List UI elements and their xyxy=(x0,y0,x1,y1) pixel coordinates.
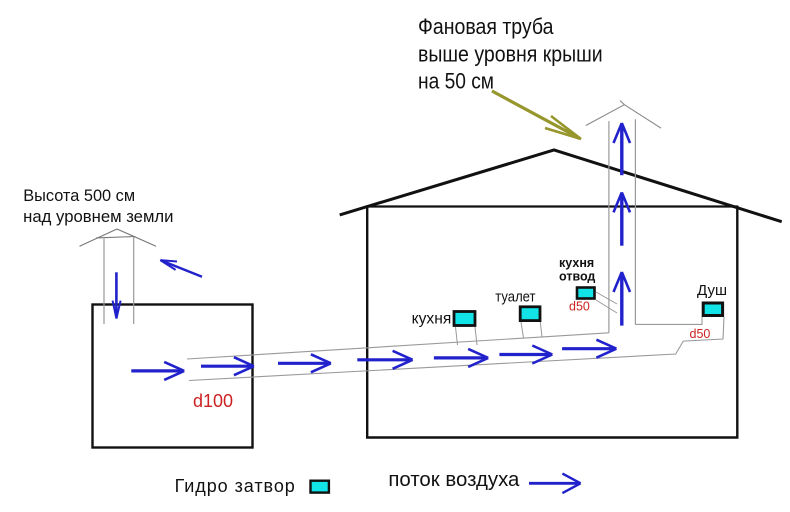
svg-text:кухня: кухня xyxy=(412,311,452,328)
svg-text:d100: d100 xyxy=(193,391,233,411)
svg-text:d50: d50 xyxy=(690,327,711,341)
svg-text:d50: d50 xyxy=(569,300,590,314)
svg-text:кухня: кухня xyxy=(559,256,594,270)
svg-text:Высота 500 см: Высота 500 см xyxy=(23,187,135,205)
svg-text:над уровнем земли: над уровнем земли xyxy=(23,208,173,226)
svg-text:отвод: отвод xyxy=(559,270,595,284)
svg-text:Фановая труба: Фановая труба xyxy=(418,14,554,39)
svg-text:выше уровня крыши: выше уровня крыши xyxy=(418,41,603,66)
svg-text:Душ: Душ xyxy=(697,282,727,299)
svg-text:на 50 см: на 50 см xyxy=(418,68,494,93)
svg-text:поток воздуха: поток воздуха xyxy=(388,469,520,491)
svg-text:Гидро затвор: Гидро затвор xyxy=(175,476,295,496)
svg-text:туалет: туалет xyxy=(495,289,535,306)
